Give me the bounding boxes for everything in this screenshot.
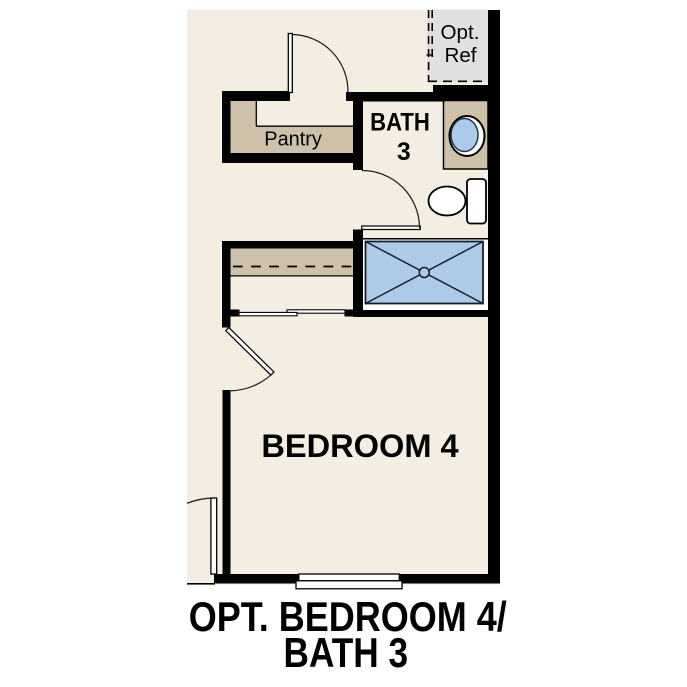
svg-text:Ref: Ref <box>444 44 476 67</box>
svg-text:BATH: BATH <box>370 110 430 137</box>
svg-text:3: 3 <box>397 139 411 166</box>
svg-text:BEDROOM 4: BEDROOM 4 <box>261 427 458 464</box>
svg-text:Pantry: Pantry <box>264 127 322 150</box>
svg-text:Opt.: Opt. <box>441 21 480 44</box>
svg-text:BATH 3: BATH 3 <box>284 629 409 676</box>
